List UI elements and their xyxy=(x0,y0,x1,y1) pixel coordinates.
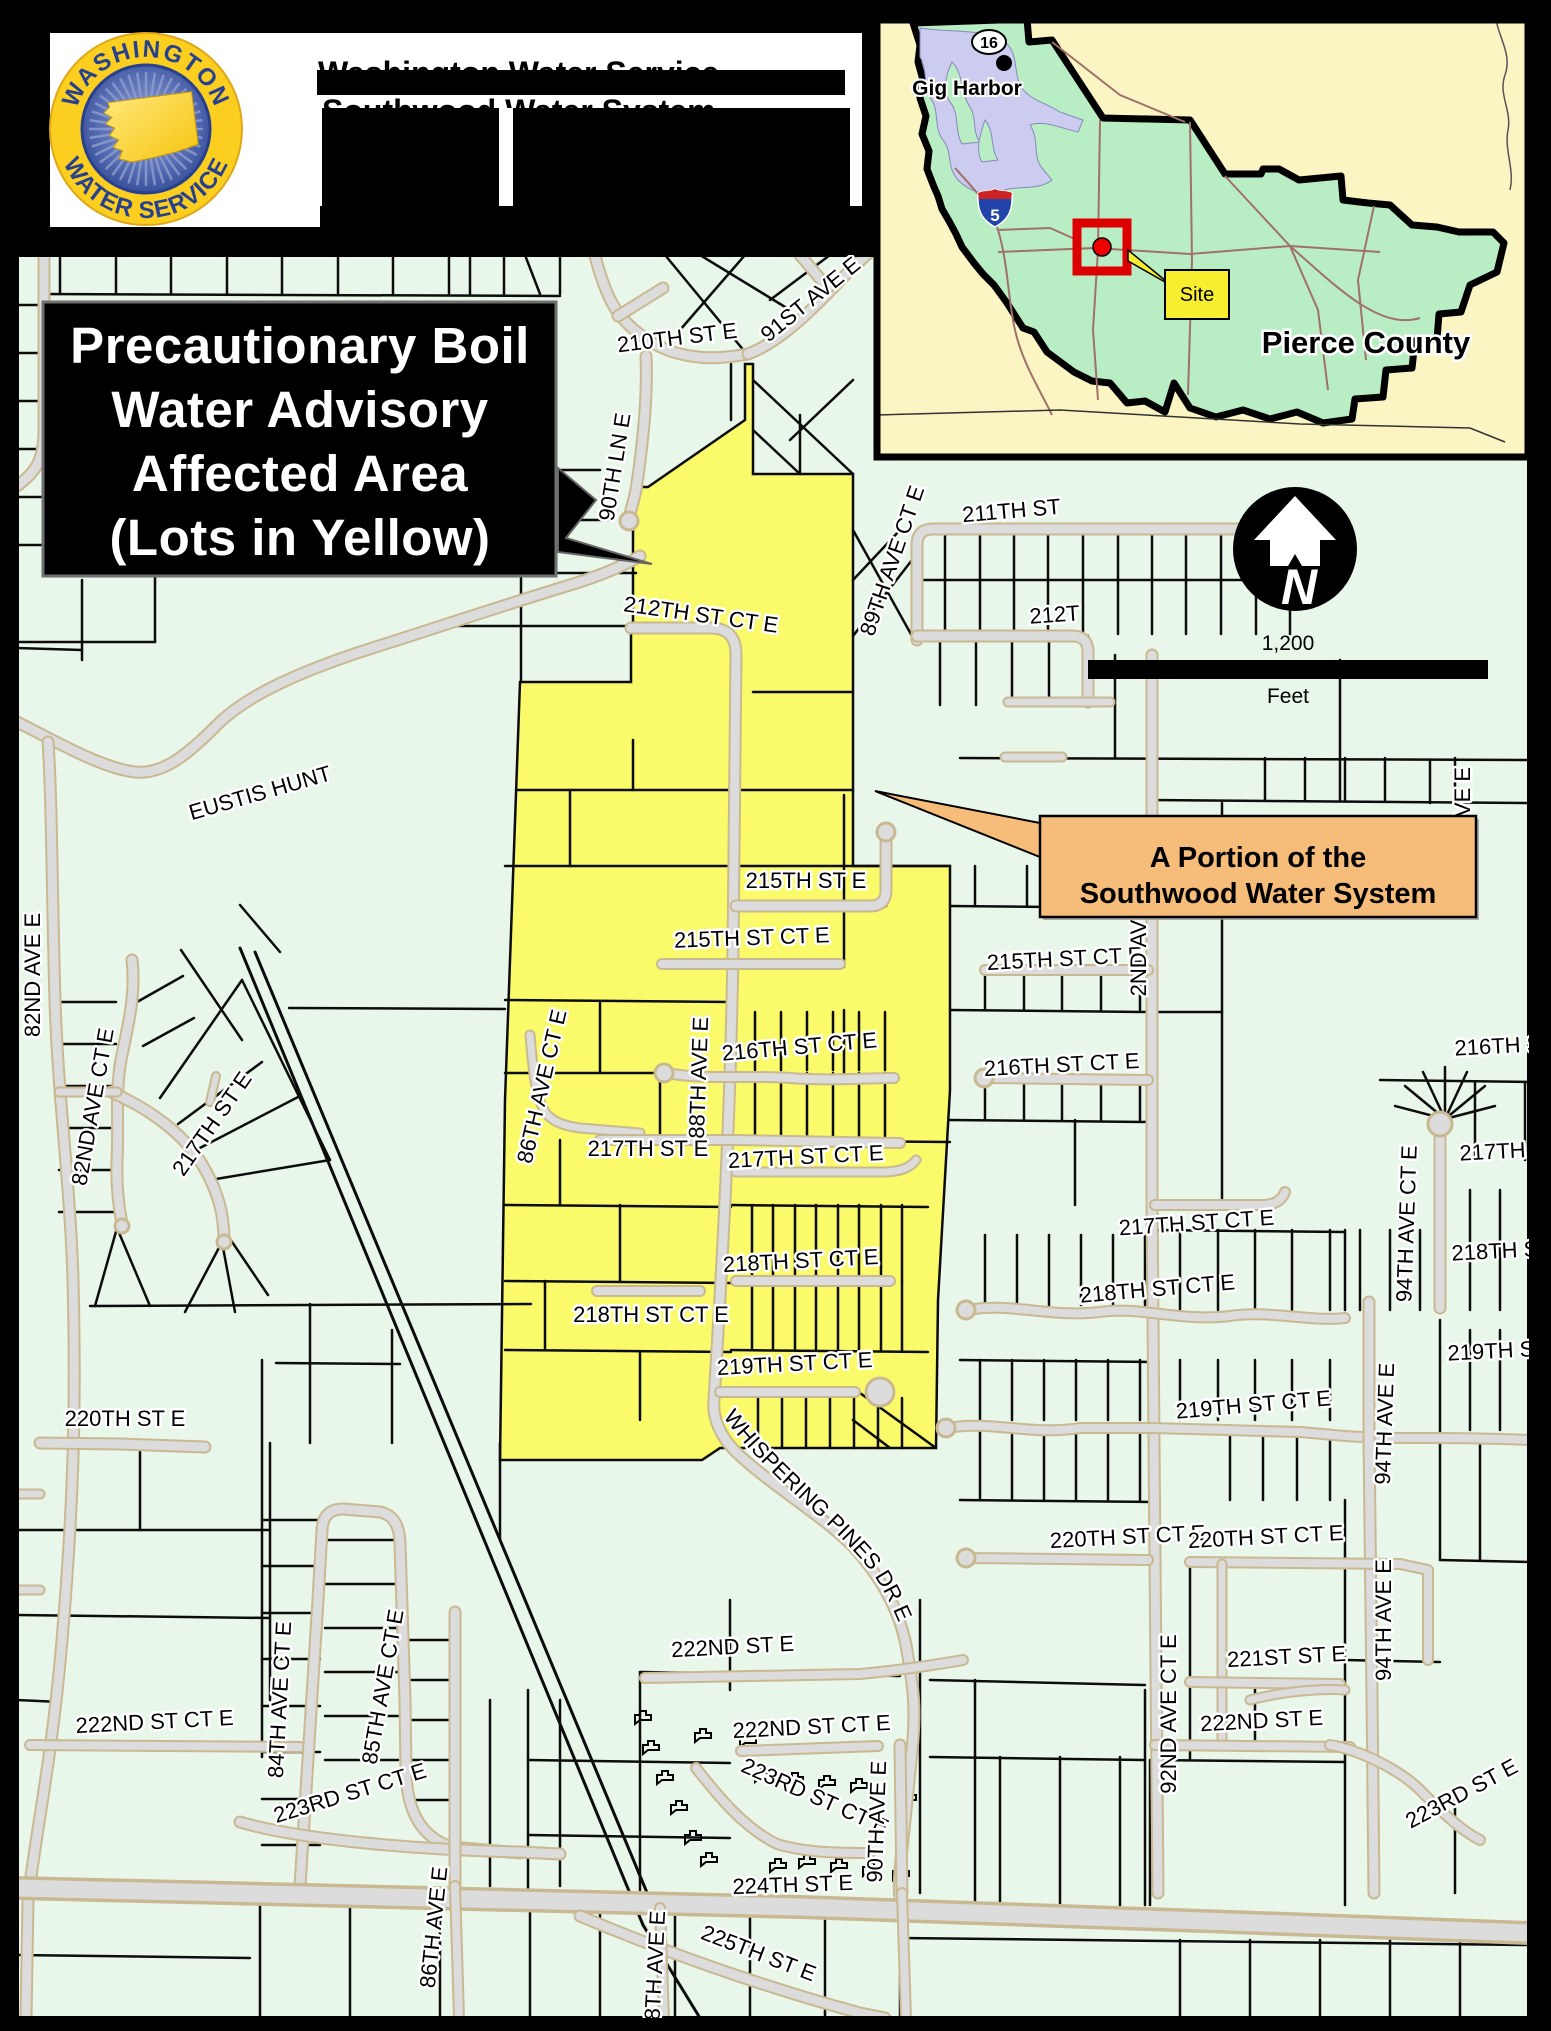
svg-text:2ND AV: 2ND AV xyxy=(1126,919,1151,996)
svg-text:1,200: 1,200 xyxy=(1262,632,1315,655)
svg-text:Water Advisory: Water Advisory xyxy=(111,381,488,438)
svg-text:212T: 212T xyxy=(1029,600,1081,628)
svg-text:224TH ST E: 224TH ST E xyxy=(732,1870,853,1899)
svg-text:Pierce County: Pierce County xyxy=(1262,325,1471,360)
svg-text:16: 16 xyxy=(980,35,998,52)
svg-text:94TH AVE E: 94TH AVE E xyxy=(1370,1362,1399,1485)
svg-text:Gig Harbor: Gig Harbor xyxy=(912,77,1022,100)
svg-text:Affected Area: Affected Area xyxy=(132,445,468,502)
svg-text:Site: Site xyxy=(1180,284,1214,306)
svg-text:82ND AVE E: 82ND AVE E xyxy=(20,913,45,1037)
svg-text:220TH ST E: 220TH ST E xyxy=(65,1406,186,1431)
svg-text:5: 5 xyxy=(990,206,999,225)
svg-text:90TH AVE E: 90TH AVE E xyxy=(862,1760,891,1883)
svg-text:VE E: VE E xyxy=(1450,767,1475,817)
svg-text:215TH ST E: 215TH ST E xyxy=(746,868,867,893)
svg-text:88TH AVE E: 88TH AVE E xyxy=(684,1016,713,1139)
svg-text:Southwood Water System: Southwood Water System xyxy=(1080,878,1437,910)
svg-text:N: N xyxy=(1281,559,1318,615)
svg-text:94TH AVE E: 94TH AVE E xyxy=(1371,1559,1396,1681)
svg-text:Feet: Feet xyxy=(1267,685,1309,708)
svg-text:218TH ST CT E: 218TH ST CT E xyxy=(573,1302,729,1327)
svg-text:217TH ST E: 217TH ST E xyxy=(588,1136,709,1161)
svg-text:(Lots in Yellow): (Lots in Yellow) xyxy=(109,509,490,566)
svg-text:Precautionary Boil: Precautionary Boil xyxy=(70,317,530,374)
svg-text:A Portion of the: A Portion of the xyxy=(1150,842,1366,874)
svg-text:92ND AVE CT E: 92ND AVE CT E xyxy=(1156,1634,1181,1793)
